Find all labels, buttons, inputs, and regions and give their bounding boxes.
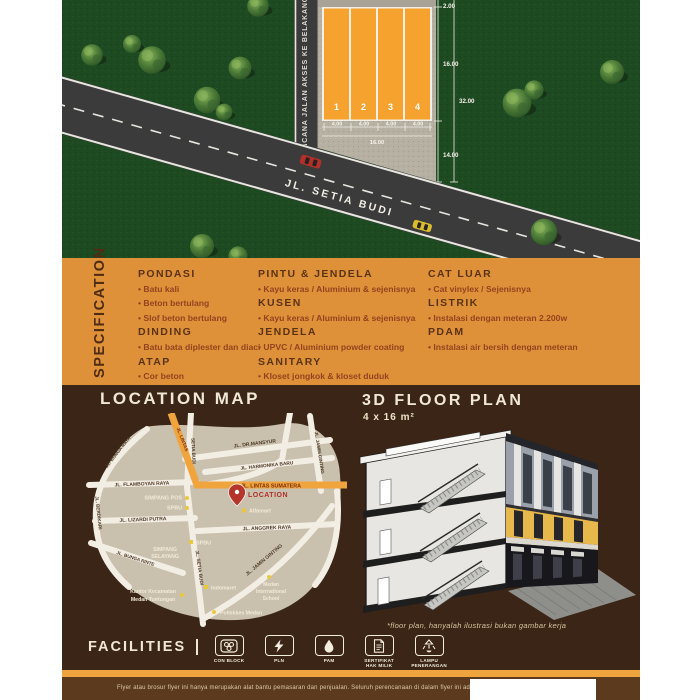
spec-item: UPVC / Aluminium powder coating — [258, 340, 415, 355]
facility-label: PLN — [260, 658, 298, 663]
poi-simpang-selayang-1: SIMPANG — [153, 547, 177, 553]
location-pin-dot — [235, 490, 239, 494]
spec-heading: ATAP — [138, 355, 260, 370]
location-map-title: LOCATION MAP — [100, 389, 260, 409]
poi-spbu2-marker — [189, 540, 193, 544]
poi-simpang-pos: SIMPANG POS — [144, 496, 182, 502]
spec-heading: DINDING — [138, 325, 260, 340]
lot-1-number: 1 — [334, 102, 339, 112]
facility-con-block: CON BLOCK — [210, 635, 248, 663]
poi-simpang-pos-marker — [185, 496, 189, 500]
spec-heading: SANITARY — [258, 355, 415, 370]
facility-sertifikat: SERTIFIKAT HAK MILIK — [360, 635, 398, 669]
poi-simpang-selayang-2: SELAYANG — [151, 554, 179, 560]
spec-heading: PDAM — [428, 325, 578, 340]
access-road: RENCANA JALAN AKSES KE BELAKANG — [294, 0, 320, 160]
dim-total-depth: 32.00 — [459, 98, 475, 105]
street-lamp-icon — [415, 635, 444, 656]
spec-heading: KUSEN — [258, 296, 415, 311]
location-map: JL. DR.MANSYUR JL. JAMIN GINTING JL. HAR… — [85, 413, 347, 631]
poi-mis-1: Medan — [263, 582, 279, 588]
accent-strip — [62, 670, 640, 677]
lot-width-1: 4.00 — [332, 122, 343, 128]
lot-3-number: 3 — [388, 102, 393, 112]
spec-item: Kayu keras / Aluminium & sejenisnya — [258, 282, 415, 297]
back-strip — [318, 0, 436, 7]
specification-section: SPECIFICATION PONDASI Batu kali Beton be… — [62, 258, 640, 385]
poi-indomaret-marker — [204, 585, 208, 589]
flyer-canvas: RENCANA JALAN AKSES KE BELAKANG 1 2 3 4 — [0, 0, 700, 700]
lot-2-number: 2 — [361, 102, 366, 112]
specification-title: SPECIFICATION — [92, 266, 108, 378]
spec-item: Slof beton bertulang — [138, 311, 260, 326]
facility-label: PAM — [310, 658, 348, 663]
poi-spbu1: SPBU — [167, 506, 182, 512]
facilities-title: FACILITIES — [88, 639, 198, 655]
poi-mis-3: School — [263, 596, 280, 602]
lot-width-2: 4.00 — [359, 122, 370, 128]
dim-back: 2.00 — [443, 3, 456, 10]
poi-mis-marker — [267, 575, 271, 579]
facility-label: CON BLOCK — [210, 658, 248, 663]
facility-label: PENERANGAN — [410, 663, 448, 668]
poi-alfamart: Alfamart — [249, 509, 271, 515]
spec-item: Instalasi air bersih dengan meteran — [428, 340, 578, 355]
poi-alfamart-marker — [242, 509, 246, 513]
spec-column-1: PONDASI Batu kali Beton bertulang Slof b… — [138, 267, 260, 384]
lot-block: 1 2 3 4 — [322, 7, 432, 121]
spec-item: Cat vinylex / Sejenisnya — [428, 282, 578, 297]
site-plan-render: RENCANA JALAN AKSES KE BELAKANG 1 2 3 4 — [62, 0, 640, 258]
poi-spbu1-marker — [185, 506, 189, 510]
certificate-icon — [365, 635, 394, 656]
building-render — [358, 407, 638, 622]
facility-label: HAK MILIK — [360, 663, 398, 668]
facility-lampu: LAMPU PENERANGAN — [410, 635, 448, 669]
lot-4-number: 4 — [415, 102, 420, 112]
facility-pam: PAM — [310, 635, 348, 663]
poi-kantor-1: Kantor Kecamatan — [130, 589, 176, 595]
facility-pln: PLN — [260, 635, 298, 663]
poi-indomaret: Indomaret — [211, 586, 236, 592]
poi-kantor-marker — [180, 593, 184, 597]
spec-heading: LISTRIK — [428, 296, 578, 311]
spec-item: Batu bata diplester dan diaci — [138, 340, 260, 355]
spec-item: Instalasi dengan meteran 2.200w — [428, 311, 578, 326]
dim-lot-depth: 16.00 — [443, 61, 459, 68]
dim-front: 14.00 — [443, 152, 459, 159]
lot-width-4: 4.00 — [413, 122, 424, 128]
building-facade — [506, 433, 598, 588]
width-total: 16.00 — [370, 140, 385, 146]
spec-item: Batu kali — [138, 282, 260, 297]
poi-mis-2: International — [256, 589, 287, 595]
poi-spbu2: SPBU — [196, 541, 211, 547]
spec-item: Kloset jongkok & kloset duduk — [258, 369, 415, 384]
poi-poltekkes: Poltekkes Medan — [220, 611, 262, 617]
lower-panel: LOCATION MAP JL. DR.MANSYUR — [62, 385, 640, 670]
footer-cutout — [470, 679, 596, 700]
label-lintas-sumatera: JL. LINTAS SUMATERA — [241, 484, 301, 490]
lot-width-3: 4.00 — [386, 122, 397, 128]
facilities-row: FACILITIES CON BLOCK — [88, 635, 448, 669]
lightning-icon — [265, 635, 294, 656]
spec-heading: PINTU & JENDELA — [258, 267, 415, 282]
spec-column-3: CAT LUAR Cat vinylex / Sejenisnya LISTRI… — [428, 267, 578, 355]
poi-poltekkes-marker — [212, 610, 216, 614]
interior-doors — [378, 479, 391, 605]
spec-item: Cor beton — [138, 369, 260, 384]
spec-item: Beton bertulang — [138, 296, 260, 311]
spec-heading: PONDASI — [138, 267, 260, 282]
con-block-icon — [215, 635, 244, 656]
poi-location: LOCATION — [248, 492, 288, 499]
water-drop-icon — [315, 635, 344, 656]
floor-plan-disclaimer: *floor plan, hanyalah ilustrasi bukan ga… — [387, 621, 566, 630]
spec-heading: JENDELA — [258, 325, 415, 340]
access-road-label: RENCANA JALAN AKSES KE BELAKANG — [302, 0, 309, 160]
spec-column-2: PINTU & JENDELA Kayu keras / Aluminium &… — [258, 267, 415, 384]
poi-kantor-2: Medan Tuntungan — [131, 597, 175, 603]
spec-item: Kayu keras / Aluminium & sejenisnya — [258, 311, 415, 326]
spec-heading: CAT LUAR — [428, 267, 578, 282]
